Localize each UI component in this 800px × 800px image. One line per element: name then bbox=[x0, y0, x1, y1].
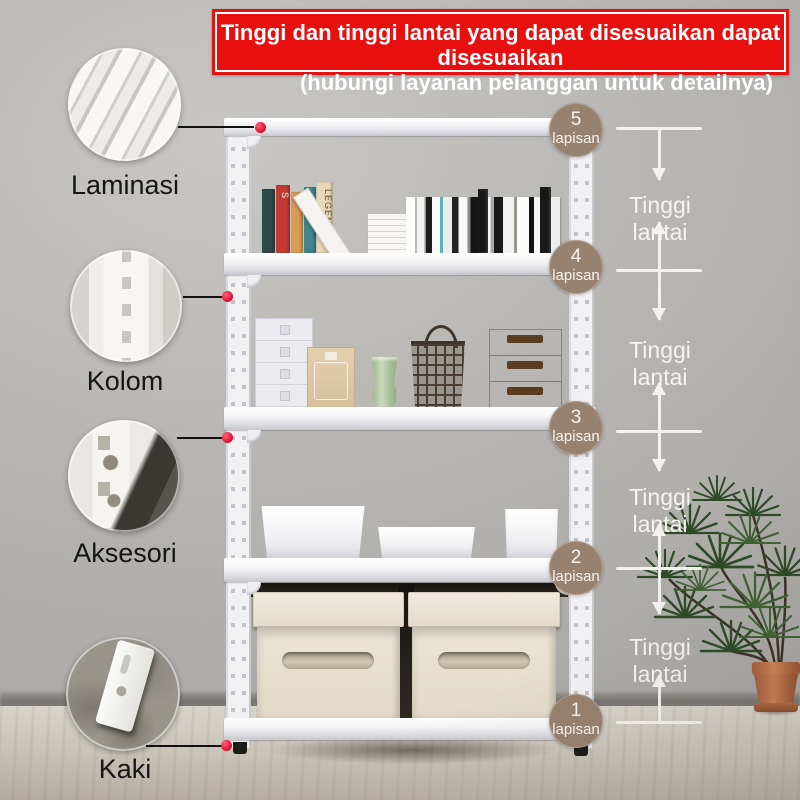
gap-label: Tinggi lantai bbox=[602, 634, 718, 688]
promo-banner: Tinggi dan tinggi lantai yang dapat dise… bbox=[212, 9, 789, 75]
fabric-box-handle bbox=[282, 652, 374, 669]
callout-label-laminasi: Laminasi bbox=[45, 170, 205, 201]
marker-dot bbox=[221, 740, 232, 751]
drawer-knob bbox=[280, 347, 290, 357]
badge-number: 1 bbox=[549, 701, 603, 721]
callout-circle-aksesori bbox=[68, 420, 180, 532]
gap-label: Tinggi lantai bbox=[602, 484, 718, 538]
mini-drawer-unit bbox=[255, 318, 313, 409]
shelf-beam-3 bbox=[224, 407, 596, 430]
shelf-beam-bottom bbox=[224, 718, 596, 740]
marker-dot bbox=[255, 122, 266, 133]
badge-unit: lapisan bbox=[549, 130, 603, 147]
fabric-storage-box bbox=[257, 592, 400, 718]
shelf-foot-closeup bbox=[95, 639, 155, 732]
layer-badge-2: 2 lapisan bbox=[549, 541, 603, 595]
layer-badge-3: 3 lapisan bbox=[549, 401, 603, 455]
pot-rim bbox=[752, 662, 800, 674]
marker-dot bbox=[222, 291, 233, 302]
callout-circle-kaki bbox=[66, 637, 180, 751]
tall-book bbox=[540, 187, 551, 253]
shelf-foot-left bbox=[233, 742, 247, 754]
banner-text: Tinggi dan tinggi lantai yang dapat dise… bbox=[212, 9, 789, 75]
shelf-beam-top bbox=[224, 118, 596, 136]
callout-circle-kolom bbox=[70, 250, 182, 362]
fabric-storage-box bbox=[412, 592, 556, 718]
fabric-box-lid bbox=[253, 592, 404, 627]
shelf-beam-2 bbox=[224, 558, 596, 582]
arrow-double bbox=[658, 383, 661, 471]
arrow-down bbox=[658, 130, 661, 180]
drawer-slot bbox=[507, 387, 543, 395]
white-bin bbox=[257, 506, 369, 559]
banner-line1: Tinggi dan tinggi lantai yang dapat dise… bbox=[212, 20, 789, 70]
white-tray bbox=[375, 527, 478, 559]
badge-number: 5 bbox=[549, 110, 603, 130]
callout-line-kaki bbox=[146, 745, 224, 747]
badge-unit: lapisan bbox=[549, 721, 603, 738]
fabric-box-lid bbox=[408, 592, 560, 627]
terracotta-pot bbox=[752, 662, 800, 712]
fabric-box-handle bbox=[438, 652, 530, 669]
drawer-slot bbox=[507, 335, 543, 343]
wooden-drawer-unit bbox=[489, 329, 562, 409]
shelf-beam-4 bbox=[224, 253, 596, 275]
corner-gusset bbox=[247, 275, 261, 288]
badge-unit: lapisan bbox=[549, 568, 603, 585]
gap-label: Tinggi lantai bbox=[602, 192, 718, 246]
layer-badge-1: 1 lapisan bbox=[549, 694, 603, 748]
fabric-box-body bbox=[257, 626, 400, 718]
drawer-knob bbox=[280, 369, 290, 379]
callout-label-kaki: Kaki bbox=[45, 754, 205, 785]
badge-unit: lapisan bbox=[549, 428, 603, 445]
product-infographic: S LEGEND bbox=[0, 0, 800, 800]
book-spine bbox=[262, 189, 275, 253]
badge-unit: lapisan bbox=[549, 267, 603, 284]
badge-number: 4 bbox=[549, 247, 603, 267]
corner-gusset bbox=[247, 136, 261, 149]
callout-line-aksesori bbox=[177, 437, 225, 439]
drawer-knob bbox=[280, 391, 290, 401]
callout-label-kolom: Kolom bbox=[45, 366, 205, 397]
callout-line-laminasi bbox=[178, 126, 254, 128]
book-spine-text: S bbox=[276, 192, 290, 199]
book-spine: S bbox=[276, 185, 290, 253]
callout-label-aksesori: Aksesori bbox=[45, 538, 205, 569]
pot-body bbox=[754, 674, 798, 704]
kraft-box bbox=[307, 347, 355, 409]
callout-circle-laminasi bbox=[68, 48, 181, 161]
fabric-box-body bbox=[412, 626, 556, 718]
banner-line2: (hubungi layanan pelanggan untuk detailn… bbox=[212, 70, 789, 95]
green-vase bbox=[369, 357, 400, 408]
drawer-knob bbox=[280, 325, 290, 335]
drawer-slot bbox=[507, 361, 543, 369]
corner-gusset bbox=[247, 430, 261, 443]
gap-label: Tinggi lantai bbox=[602, 337, 718, 391]
tall-book bbox=[478, 189, 488, 253]
badge-number: 3 bbox=[549, 408, 603, 428]
layer-badge-4: 4 lapisan bbox=[549, 240, 603, 294]
wire-basket bbox=[408, 341, 468, 411]
badge-number: 2 bbox=[549, 548, 603, 568]
layer-badge-5: 5 lapisan bbox=[549, 103, 603, 157]
callout-line-kolom bbox=[183, 296, 225, 298]
pot-saucer bbox=[754, 703, 798, 712]
marker-dot bbox=[222, 432, 233, 443]
